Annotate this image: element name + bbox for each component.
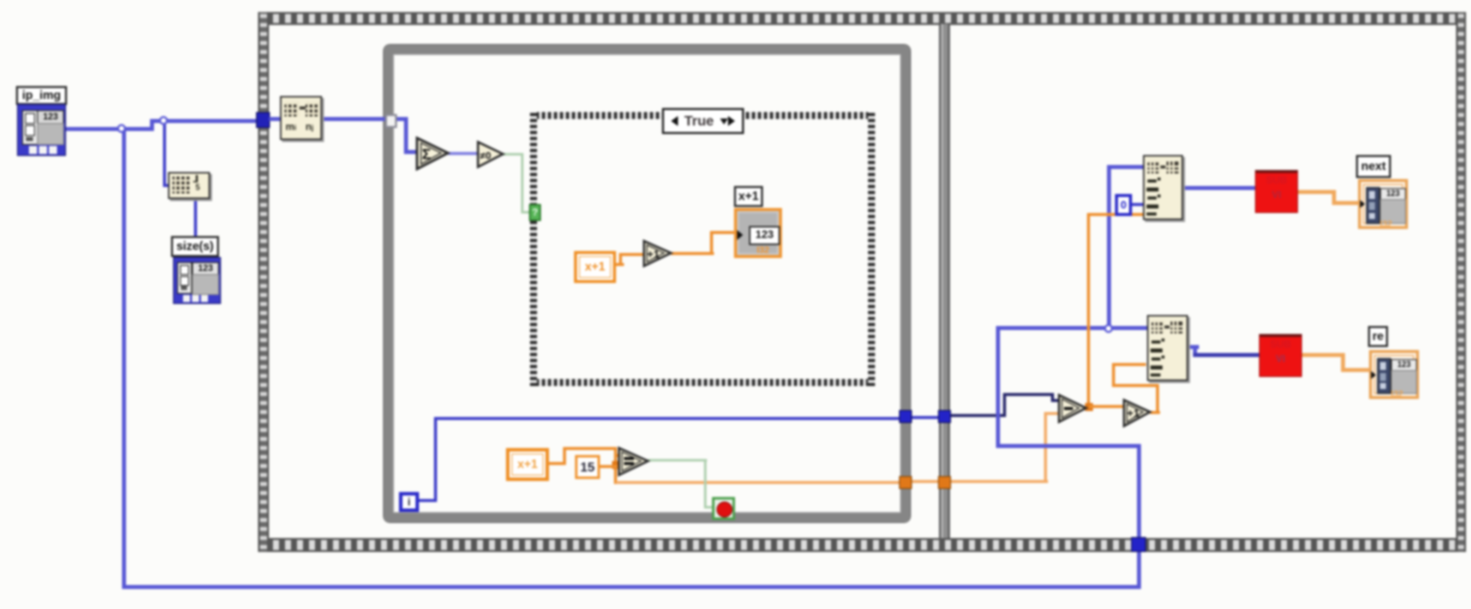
svg-text:≠0: ≠0 bbox=[480, 151, 491, 162]
svg-text:Σ: Σ bbox=[422, 146, 431, 163]
svg-text:+1: +1 bbox=[1127, 408, 1140, 420]
svg-text:+1: +1 bbox=[647, 249, 660, 261]
